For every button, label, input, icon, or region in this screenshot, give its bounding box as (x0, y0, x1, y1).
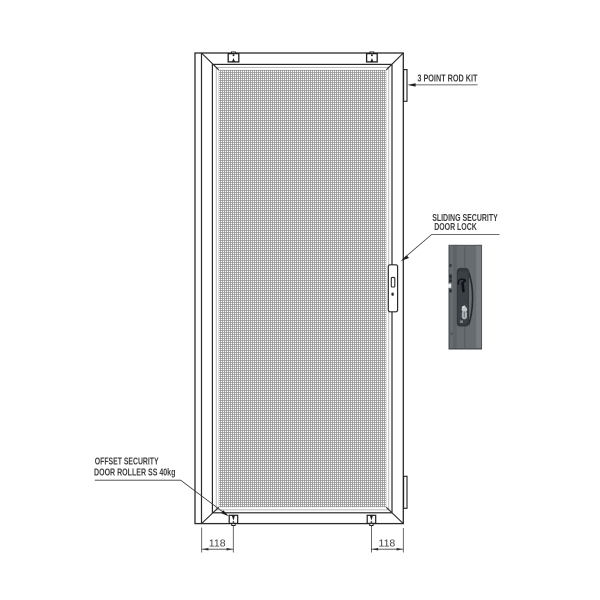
svg-text:118: 118 (209, 538, 226, 549)
svg-text:3 POINT ROD KIT: 3 POINT ROD KIT (417, 73, 477, 84)
svg-text:118: 118 (379, 538, 396, 549)
svg-text:DOOR ROLLER SS 40kg: DOOR ROLLER SS 40kg (94, 468, 175, 479)
svg-text:DOOR LOCK: DOOR LOCK (434, 222, 477, 233)
svg-text:OFFSET SECURITY: OFFSET SECURITY (95, 456, 159, 467)
